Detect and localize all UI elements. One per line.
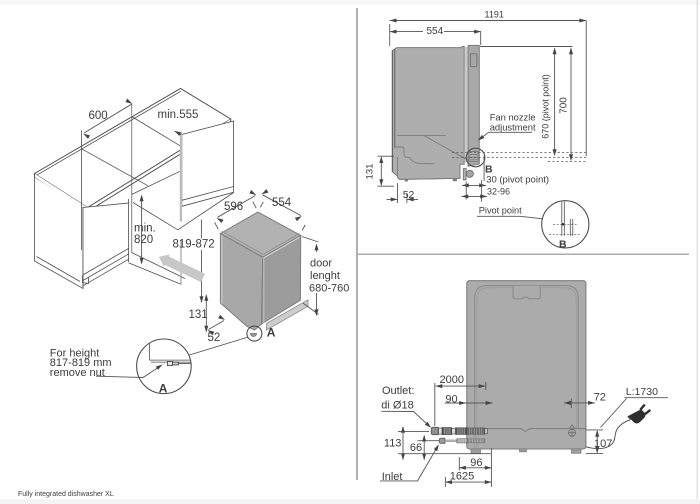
svg-text:819-872: 819-872 [173, 239, 215, 251]
svg-text:A: A [267, 326, 276, 340]
svg-text:min.: min. [134, 223, 156, 235]
svg-text:Fully integrated dishwasher XL: Fully integrated dishwasher XL [18, 491, 114, 498]
svg-text:B: B [559, 239, 567, 251]
svg-text:32-96: 32-96 [487, 187, 510, 197]
svg-text:113: 113 [384, 438, 402, 450]
svg-text:door: door [310, 258, 332, 270]
svg-text:131: 131 [365, 164, 376, 180]
svg-text:adjustment: adjustment [490, 122, 536, 133]
svg-text:554: 554 [272, 197, 292, 209]
svg-text:1625: 1625 [450, 471, 474, 483]
svg-text:820: 820 [134, 234, 153, 246]
svg-text:remove nut: remove nut [50, 367, 105, 379]
svg-text:700: 700 [559, 97, 570, 114]
svg-text:1191: 1191 [485, 10, 504, 20]
svg-text:A: A [159, 381, 168, 395]
svg-text:52: 52 [208, 332, 221, 344]
svg-text:670 (pivot point): 670 (pivot point) [541, 74, 551, 139]
svg-text:554: 554 [427, 26, 444, 37]
svg-text:min.555: min.555 [158, 109, 199, 121]
svg-text:90: 90 [445, 393, 457, 405]
svg-text:72: 72 [594, 392, 606, 404]
svg-text:di Ø18: di Ø18 [381, 399, 413, 411]
svg-text:600: 600 [89, 110, 108, 122]
svg-text:L:1730: L:1730 [626, 386, 658, 398]
svg-text:131: 131 [189, 309, 208, 321]
svg-text:96: 96 [470, 457, 482, 469]
svg-text:66: 66 [410, 442, 422, 454]
svg-text:Outlet:: Outlet: [382, 385, 414, 397]
svg-text:30 (pivot point): 30 (pivot point) [486, 175, 549, 186]
svg-text:Pivot point: Pivot point [479, 206, 522, 216]
svg-text:lenght: lenght [310, 270, 340, 282]
svg-text:107: 107 [594, 438, 612, 450]
svg-text:52: 52 [403, 189, 415, 201]
svg-text:596: 596 [224, 201, 243, 213]
svg-text:2000: 2000 [440, 374, 464, 386]
svg-text:680-760: 680-760 [309, 283, 349, 295]
